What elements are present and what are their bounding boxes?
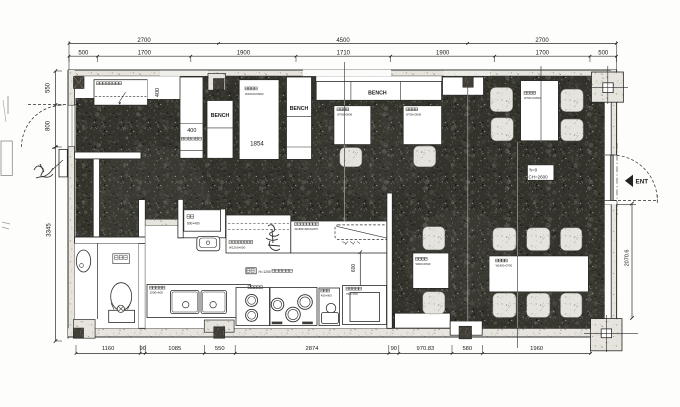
svg-text:W705×D638: W705×D638 — [406, 112, 422, 116]
svg-text:CH=2600: CH=2600 — [529, 175, 549, 180]
svg-text:W600×D630: W600×D630 — [416, 262, 432, 266]
svg-text:550: 550 — [46, 82, 52, 93]
svg-text:970.83: 970.83 — [417, 346, 435, 352]
svg-text:580: 580 — [462, 346, 472, 352]
svg-text:2874: 2874 — [306, 346, 320, 352]
svg-text:600: 600 — [351, 264, 357, 273]
svg-text:h=0: h=0 — [530, 168, 538, 173]
svg-text:550: 550 — [215, 346, 225, 352]
svg-text:1500×600: 1500×600 — [150, 291, 164, 295]
svg-text:W1800×600×H870: W1800×600×H870 — [295, 227, 319, 231]
svg-text:W700×D1500: W700×D1500 — [524, 96, 541, 100]
svg-text:3345: 3345 — [47, 223, 53, 237]
svg-text:2700: 2700 — [137, 38, 151, 44]
svg-text:BENCH: BENCH — [368, 90, 387, 96]
svg-text:1900: 1900 — [237, 50, 251, 56]
svg-text:500: 500 — [78, 50, 89, 56]
svg-text:2070.6: 2070.6 — [625, 250, 631, 267]
svg-text:2700: 2700 — [535, 38, 549, 44]
svg-text:BENCH: BENCH — [211, 113, 230, 119]
svg-text:BENCH: BENCH — [290, 106, 309, 112]
svg-text:500: 500 — [598, 50, 609, 56]
svg-text:1700: 1700 — [536, 50, 550, 56]
svg-text:600×400: 600×400 — [187, 222, 200, 226]
svg-text:ENT: ENT — [636, 178, 649, 185]
svg-text:1710: 1710 — [337, 50, 351, 56]
svg-text:400: 400 — [155, 88, 161, 97]
svg-text:1854: 1854 — [250, 141, 264, 148]
svg-text:1960: 1960 — [530, 346, 543, 352]
svg-text:90: 90 — [391, 346, 397, 352]
svg-text:1900: 1900 — [436, 50, 450, 56]
svg-text:4500: 4500 — [336, 38, 350, 44]
svg-text:W1600×D900: W1600×D900 — [245, 92, 264, 96]
svg-text:1160: 1160 — [102, 346, 114, 352]
svg-text:1085: 1085 — [168, 346, 181, 352]
svg-text:90: 90 — [139, 346, 145, 352]
svg-text:1700: 1700 — [138, 50, 152, 56]
svg-text:400: 400 — [187, 128, 196, 134]
svg-text:W1200×600: W1200×600 — [229, 245, 246, 249]
svg-text:W1800×D750: W1800×D750 — [496, 264, 513, 268]
svg-text:H=1200: H=1200 — [259, 270, 271, 274]
svg-text:450×900: 450×900 — [321, 293, 332, 297]
svg-text:800: 800 — [46, 120, 52, 131]
